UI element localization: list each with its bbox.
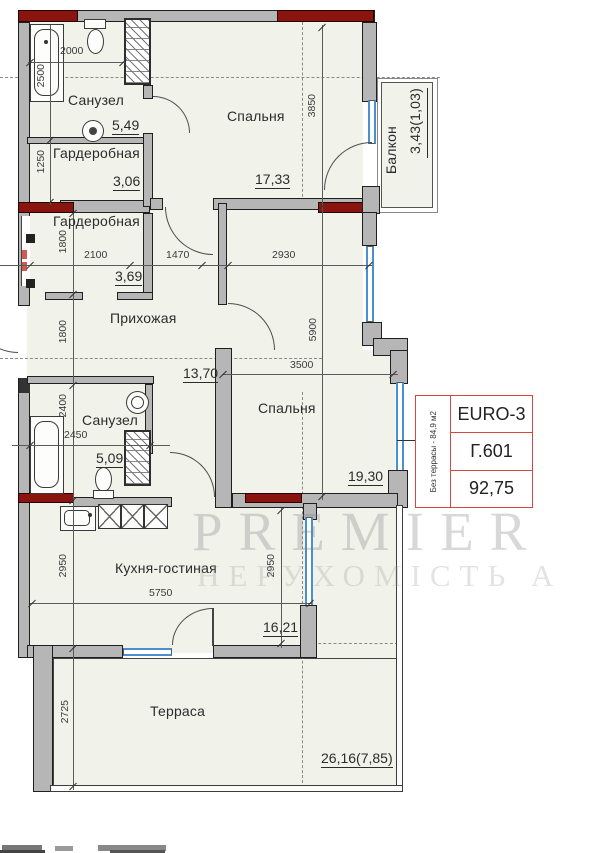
window — [123, 648, 172, 656]
wall-bedroom1-left — [143, 85, 153, 99]
door-leaf — [212, 608, 214, 646]
load-bearing-wall — [18, 493, 74, 503]
dim-label: 2950 — [58, 554, 69, 577]
room-label-bedroom2: Спальня — [258, 401, 316, 416]
dimension-line — [28, 62, 125, 63]
room-label-bedroom1: Спальня — [227, 109, 285, 124]
room-label-kitchen: Кухня-гостиная — [115, 561, 217, 576]
wall-left-lower — [18, 378, 30, 658]
window — [366, 246, 374, 322]
card-leader-line — [397, 440, 415, 441]
unit-card-unit-number: Г.601 — [451, 433, 532, 470]
toilet-bowl — [87, 29, 104, 54]
wall-bedroom1-bottom — [150, 198, 163, 210]
load-bearing-wall — [277, 10, 374, 22]
hob-cell — [144, 504, 168, 529]
dim-label: 2100 — [84, 250, 107, 261]
dim-label: 1470 — [166, 250, 189, 261]
window — [368, 100, 376, 144]
unit-card: Без террасы - 84,9 м2 EURO-3 Г.601 92,75 — [415, 395, 533, 508]
wall-pier — [26, 279, 35, 288]
dimension-line — [30, 603, 312, 604]
room-area-kitchen: 16,21 — [263, 620, 298, 637]
dimension-line — [222, 374, 398, 375]
room-area-wardrobe2: 3,69 — [115, 269, 142, 286]
axis-line — [313, 643, 398, 644]
kitchen-tap — [88, 513, 92, 517]
window — [305, 517, 313, 607]
kitchen-sink-bowl — [64, 510, 90, 526]
door-arc-entry — [0, 307, 18, 353]
room-area-hallway: 13,70 — [183, 366, 218, 383]
room-label-balcony: Балкон — [384, 126, 399, 174]
wall-wardrobe2-right — [143, 213, 153, 293]
unit-card-note: Без террасы - 84,9 м2 — [429, 411, 438, 492]
wall-jog — [390, 350, 408, 384]
load-bearing-wall — [18, 202, 74, 213]
room-label-hallway: Прихожая — [110, 311, 176, 326]
room-area-bath1: 5,49 — [112, 118, 139, 135]
wall-bath2-top — [27, 376, 154, 384]
toilet-bowl — [95, 467, 112, 492]
floor-plan: 2000 2500 1250 1800 2100 1470 2930 3850 … — [0, 0, 602, 853]
wall-right-top — [362, 22, 377, 102]
wall-bedroom2-left — [218, 203, 227, 305]
load-bearing-wall — [245, 493, 302, 503]
wall-right-mid — [362, 212, 377, 246]
dimension-line — [0, 265, 372, 266]
vent-shaft — [124, 430, 151, 486]
wall-pier — [300, 605, 317, 658]
wall-terrace-left — [33, 645, 53, 792]
hob-cell — [98, 504, 121, 529]
balcony-area-underline — [427, 88, 428, 158]
room-area-bedroom2: 19,30 — [348, 469, 383, 486]
room-area-wardrobe1: 3,06 — [113, 174, 140, 191]
window — [396, 382, 404, 472]
unit-card-total-area: 92,75 — [451, 471, 532, 507]
room-label-wardrobe1: Гардеробная — [53, 146, 140, 161]
dim-label: 2950 — [266, 554, 277, 577]
toilet-tank — [84, 19, 106, 29]
room-label-wardrobe2: Гардеробная — [53, 214, 140, 229]
floor-terrace — [53, 658, 398, 788]
unit-card-layout-type: EURO-3 — [451, 396, 532, 433]
dimension-line — [12, 445, 170, 446]
dim-label: 5900 — [308, 318, 319, 341]
dim-label: 1800 — [58, 320, 69, 343]
terrace-parapet-right — [396, 505, 403, 791]
dim-label: 2930 — [272, 250, 295, 261]
hob-cell — [121, 504, 144, 529]
wall-wardrobe2-bottom — [45, 292, 83, 300]
print-fragment — [55, 846, 73, 851]
washing-machine-door — [89, 127, 97, 135]
floor-terrace-side — [315, 508, 398, 660]
dimension-line — [322, 25, 323, 500]
dim-label: 2725 — [60, 700, 71, 723]
wall-pier — [362, 186, 380, 214]
axis-line — [302, 392, 303, 788]
bathtub-inner — [34, 421, 59, 488]
bathtub-drain — [44, 40, 48, 44]
room-area-terrace: 26,16(7,85) — [321, 751, 393, 768]
dim-label: 3850 — [307, 94, 318, 117]
wall-wardrobe2-bottom — [117, 292, 153, 300]
unit-card-note-cell: Без террасы - 84,9 м2 — [416, 396, 451, 507]
axis-line — [302, 22, 303, 207]
dim-label: 1250 — [36, 150, 47, 173]
room-label-bath1: Санузел — [68, 93, 124, 108]
wall-bedroom1-left — [143, 133, 153, 207]
dim-label: 2500 — [36, 64, 47, 87]
terrace-parapet-bottom — [50, 785, 403, 792]
dimension-line — [50, 25, 51, 205]
panel-marker — [22, 250, 27, 259]
room-label-terrace: Терраса — [150, 704, 205, 719]
dim-label: 3500 — [290, 360, 313, 371]
load-bearing-wall — [18, 10, 78, 22]
room-area-balcony: 3,43(1,03) — [408, 88, 423, 154]
wall-pier — [26, 234, 35, 243]
room-area-bedroom1: 17,33 — [255, 172, 290, 189]
toilet-tank — [93, 490, 114, 499]
dim-label: 2450 — [64, 430, 87, 441]
wall-kitchen-bottom — [213, 645, 314, 658]
dimension-line — [73, 213, 74, 790]
axis-line — [0, 358, 322, 359]
dim-label: 1800 — [58, 230, 69, 253]
room-area-bath2: 5,09 — [96, 451, 123, 468]
dim-label: 5750 — [149, 588, 172, 599]
sink-inner — [131, 396, 144, 409]
vent-shaft — [124, 18, 151, 85]
dim-label: 2400 — [58, 394, 69, 417]
dim-label: 2000 — [60, 46, 83, 57]
room-label-bath2: Санузел — [82, 413, 138, 428]
